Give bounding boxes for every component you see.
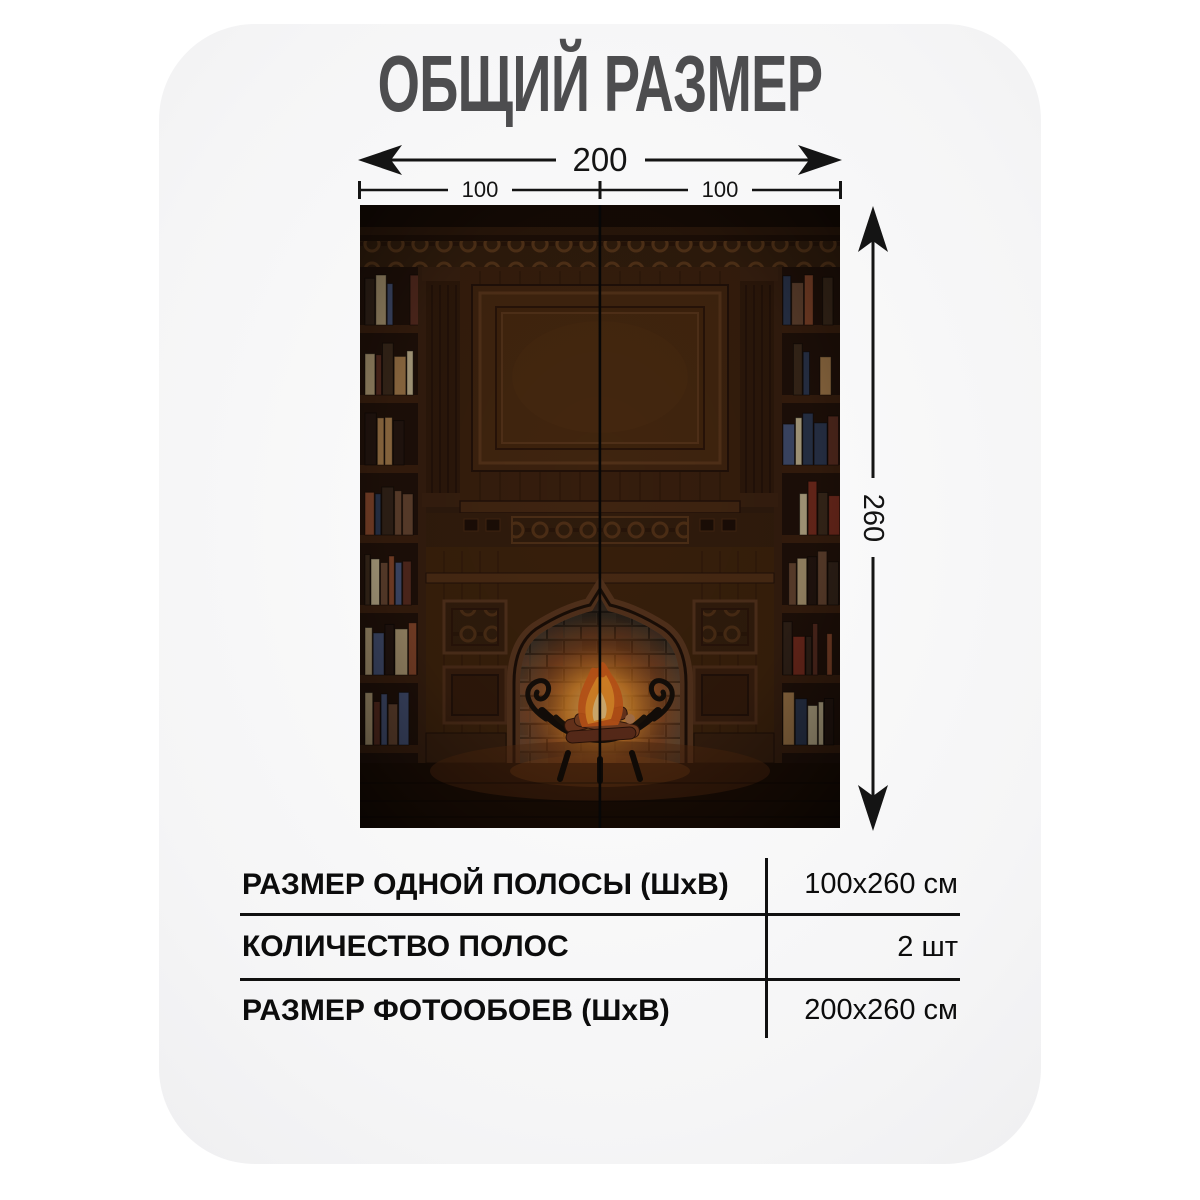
table-row: РАЗМЕР ОДНОЙ ПОЛОСЫ (ШхВ) 100x260 см (240, 856, 960, 916)
row-label: РАЗМЕР ОДНОЙ ПОЛОСЫ (ШхВ) (240, 868, 765, 902)
row-value: 200x260 см (765, 994, 960, 1027)
total-width-label: 200 (555, 141, 645, 179)
wallpaper-preview-photo (360, 205, 840, 828)
row-value: 2 шт (765, 931, 960, 964)
size-table: РАЗМЕР ОДНОЙ ПОЛОСЫ (ШхВ) 100x260 см КОЛ… (240, 856, 960, 1040)
table-column-divider (765, 858, 768, 1038)
center-strip-divider (599, 205, 602, 828)
left-strip-width-label: 100 (440, 176, 520, 204)
row-label: КОЛИЧЕСТВО ПОЛОС (240, 930, 765, 964)
right-strip-width-label: 100 (680, 176, 760, 204)
table-row: РАЗМЕР ФОТООБОЕВ (ШхВ) 200x260 см (240, 981, 960, 1040)
height-label: 260 (853, 478, 893, 558)
library-fireplace-image (360, 205, 840, 828)
page-title: ОБЩИЙ РАЗМЕР (300, 40, 900, 128)
row-value: 100x260 см (765, 868, 960, 901)
product-size-page: ОБЩИЙ РАЗМЕР (0, 0, 1200, 1200)
row-label: РАЗМЕР ФОТООБОЕВ (ШхВ) (240, 994, 765, 1028)
table-row: КОЛИЧЕСТВО ПОЛОС 2 шт (240, 916, 960, 981)
